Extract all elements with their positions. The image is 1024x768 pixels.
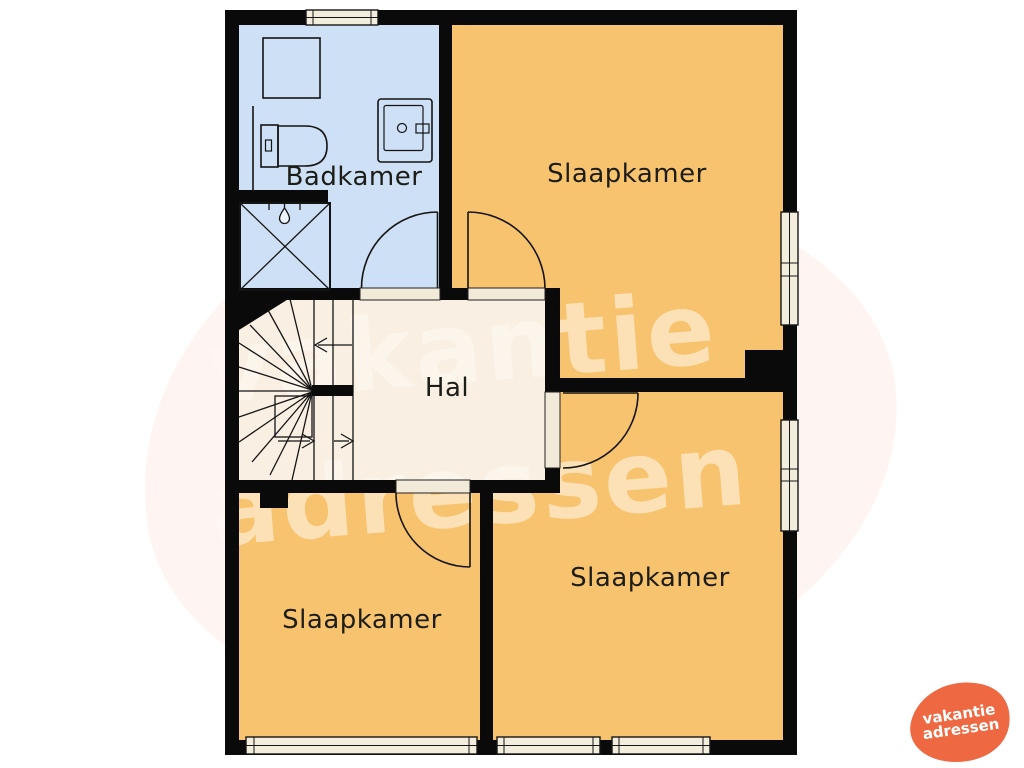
door-sill-bathroom [360, 288, 440, 300]
label-slaapkamer-left: Slaapkamer [282, 605, 442, 635]
door-left-bedroom [396, 493, 470, 567]
washbasin-icon [378, 99, 432, 162]
floorplan-canvas: vakantie adressen [0, 0, 1024, 768]
floorplan-linework [0, 0, 1024, 768]
cabinet-icon [263, 38, 320, 98]
door-sill-right-bedroom [545, 392, 560, 468]
stair-arrow-down-left [278, 434, 314, 448]
door-sill-top-bedroom [468, 288, 545, 300]
shower-head-icon [269, 203, 300, 224]
stair-arrow-down-right [334, 434, 353, 448]
window-right-top-bedroom [781, 212, 798, 325]
doors [362, 212, 639, 567]
label-slaapkamer-top: Slaapkamer [547, 159, 707, 189]
window-bottom-right-bedroom-1 [497, 737, 600, 754]
door-right-bedroom [563, 393, 638, 468]
door-sill-left-bedroom [396, 480, 470, 493]
brand-logo: vakantie adressen [905, 680, 1015, 764]
door-top-bedroom [468, 212, 545, 288]
window-right-bottom-bedroom [781, 420, 798, 531]
label-badkamer: Badkamer [286, 162, 423, 192]
window-bottom-right-bedroom-2 [612, 737, 710, 754]
staircase [239, 298, 353, 480]
label-hal: Hal [425, 373, 469, 403]
door-bathroom [362, 212, 438, 288]
toilet-icon [261, 125, 327, 167]
label-slaapkamer-right: Slaapkamer [570, 563, 730, 593]
window-top-bathroom [306, 10, 378, 25]
window-bottom-left-bedroom [246, 737, 477, 754]
stair-mid-wall [312, 385, 353, 396]
stair-corner-wall [239, 298, 290, 330]
